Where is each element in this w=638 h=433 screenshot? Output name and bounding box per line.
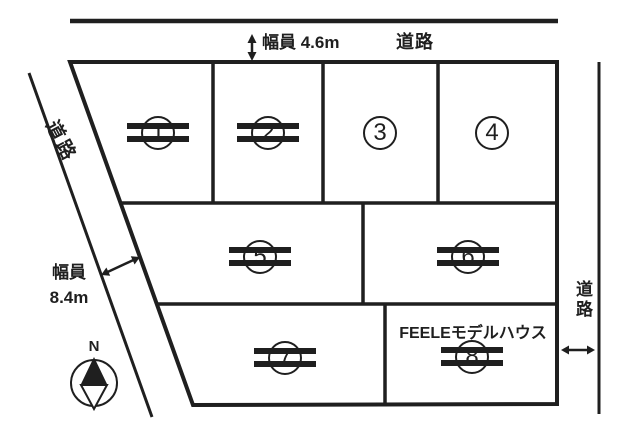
left-road-width-title: 幅員 — [36, 261, 102, 286]
lot-number: 3 — [345, 98, 415, 168]
lot-number: 4 — [457, 98, 527, 168]
lot-7-marker: 7 — [250, 323, 320, 393]
lot-number: 1 — [123, 98, 193, 168]
left-road-width-value: 8.4m — [36, 286, 102, 311]
lot-5-marker: 5 — [225, 222, 295, 292]
lot-number: 7 — [250, 323, 320, 393]
lot-number: 6 — [433, 222, 503, 292]
right-width-arrow-icon — [561, 346, 595, 355]
top-road-width-label: 幅員 4.6m — [262, 28, 339, 53]
lot-8-marker: 8 — [437, 322, 507, 392]
lot-6-marker: 6 — [433, 222, 503, 292]
left-road-width-label: 幅員 8.4m — [36, 261, 102, 310]
lot-layout-diagram: 幅員 4.6m 道路 道路 幅員 8.4m 道路 FEELEモデルハウス N 1… — [0, 0, 638, 433]
lot-2-marker: 2 — [233, 98, 303, 168]
lot-number: 2 — [233, 98, 303, 168]
right-road-label: 道路 — [570, 280, 595, 320]
lot-4-marker: 4 — [457, 98, 527, 168]
lot-3-marker: 3 — [345, 98, 415, 168]
lot-1-marker: 1 — [123, 98, 193, 168]
top-road-label: 道路 — [396, 28, 434, 54]
compass-icon — [71, 357, 117, 409]
lot-number: 8 — [437, 322, 507, 392]
compass-north-label: N — [83, 338, 105, 355]
lot-number: 5 — [225, 222, 295, 292]
top-width-arrow-icon — [248, 34, 257, 61]
left-width-arrow-icon — [101, 256, 140, 275]
